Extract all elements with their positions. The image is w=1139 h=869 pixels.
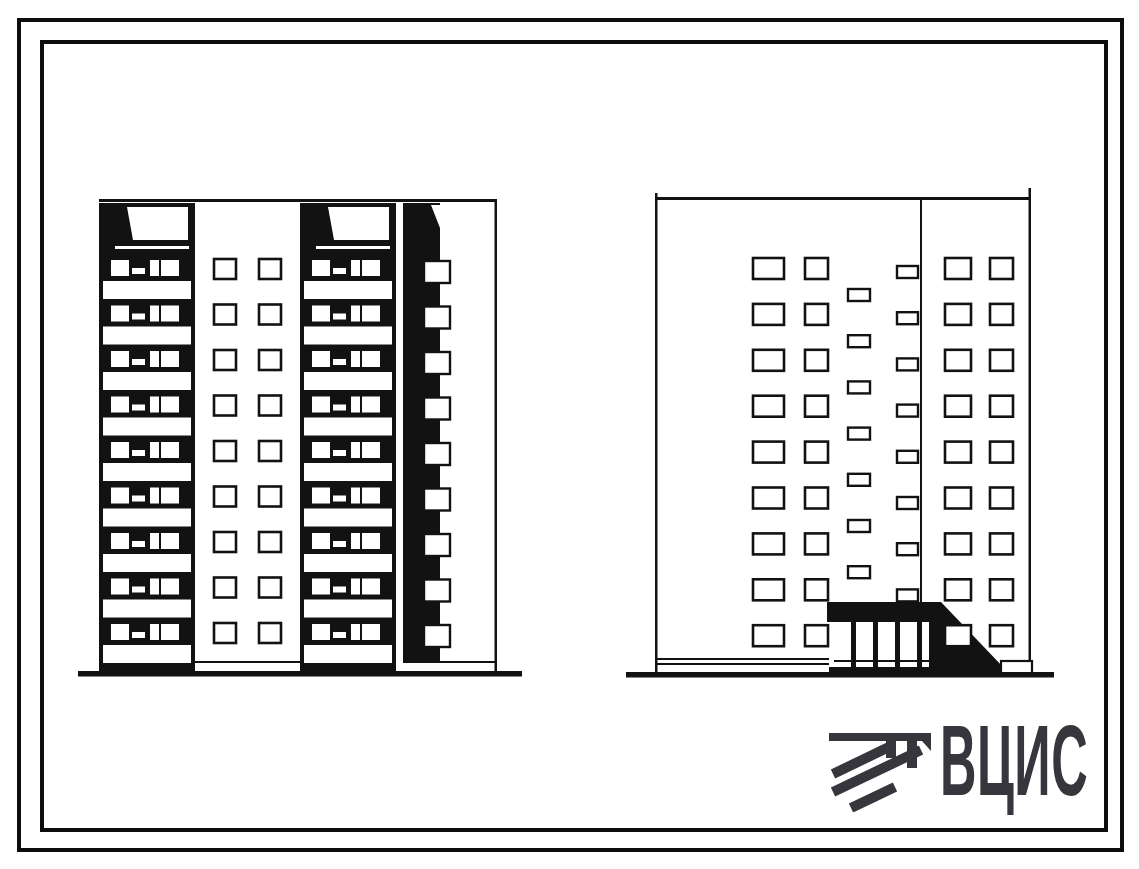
drawing-sheet: ВЦИС — [0, 0, 1139, 869]
side-strip-column — [403, 203, 450, 661]
stairwell-windows — [848, 266, 918, 601]
logo-text: ВЦИС — [940, 714, 1088, 807]
left-elevation — [78, 199, 522, 677]
logo-hatching-emblem-icon — [829, 728, 931, 812]
logo: ВЦИС — [829, 714, 1139, 812]
right-elevation — [626, 188, 1054, 678]
balcony-column — [99, 203, 195, 671]
window-pairs-column — [214, 259, 281, 643]
window-grid — [753, 258, 1013, 646]
balcony-column — [300, 203, 396, 671]
